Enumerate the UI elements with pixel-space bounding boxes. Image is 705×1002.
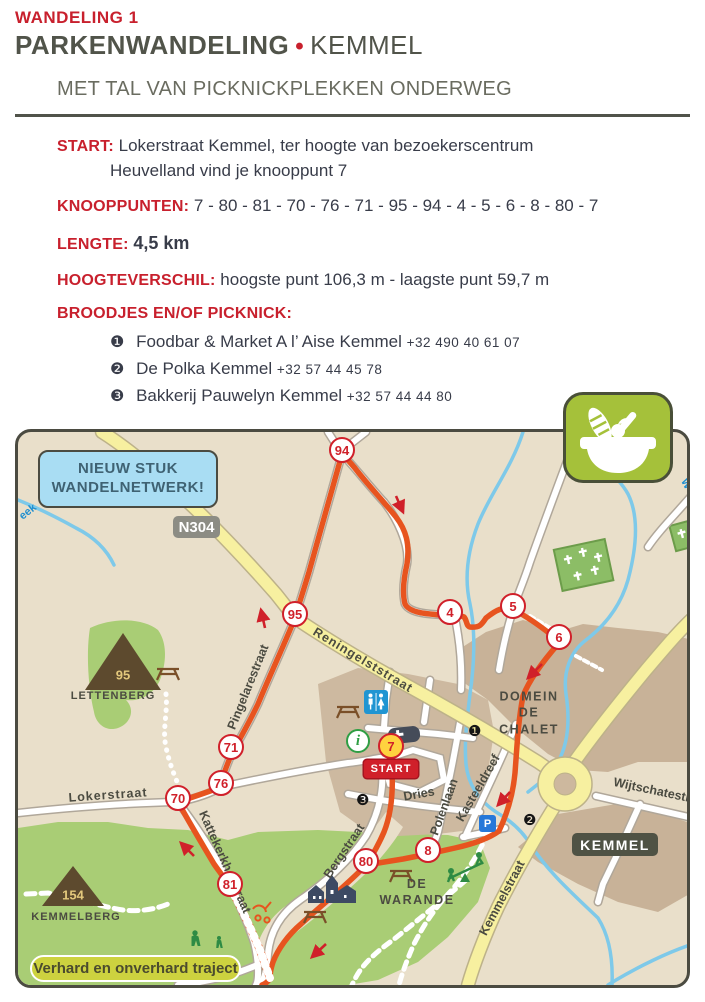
lettenberg-name: LETTENBERG xyxy=(71,690,156,702)
lengte-row: LENGTE: 4,5 km xyxy=(57,233,189,254)
poi-marker-2: ❷ xyxy=(523,811,536,829)
route-node-4: 4 xyxy=(437,599,463,625)
route-node-5: 5 xyxy=(500,593,526,619)
info-point-icon: i xyxy=(346,729,370,753)
route-node-6: 6 xyxy=(546,624,572,650)
kemmelberg-height: 154 xyxy=(62,888,84,903)
title-separator-dot: • xyxy=(289,33,310,60)
poi-marker-1: ❶ xyxy=(468,722,481,740)
road-number-badge: N304 xyxy=(173,516,220,538)
start-text-line1: Lokerstraat Kemmel, ter hoogte van bezoe… xyxy=(119,136,534,155)
area-label-domein-de-chalet: DOMEIN DE CHALET xyxy=(499,689,559,738)
callout-line2: WANDELNETWERK! xyxy=(52,479,205,498)
picnic-basket-glyph xyxy=(566,395,670,480)
walk-kicker: WANDELING 1 xyxy=(15,8,139,28)
kemmelberg-name: KEMMELBERG xyxy=(31,911,120,923)
lengte-label: LENGTE: xyxy=(57,236,129,253)
map-graphics xyxy=(18,432,690,985)
title-main: PARKENWANDELING xyxy=(15,30,289,60)
route-node-81: 81 xyxy=(217,871,243,897)
map-callout: NIEUW STUK WANDELNETWERK! xyxy=(38,450,218,508)
item-3-phone: +32 57 44 44 80 xyxy=(347,389,452,404)
route-node-94: 94 xyxy=(329,437,355,463)
picnic-basket-icon xyxy=(563,392,673,483)
hoogteverschil-row: HOOGTEVERSCHIL: hoogste punt 106,3 m - l… xyxy=(57,270,549,290)
legend-traject: Verhard en onverhard traject xyxy=(30,955,241,982)
broodjes-label: BROODJES EN/OF PICKNICK: xyxy=(57,305,292,323)
lengte-value: 4,5 km xyxy=(133,233,189,253)
list-item: ❸ Bakkerij Pauwelyn Kemmel +32 57 44 44 … xyxy=(110,386,452,406)
route-node-8: 8 xyxy=(415,837,441,863)
knooppunten-row: KNOOPPUNTEN: 7 - 80 - 81 - 70 - 76 - 71 … xyxy=(57,196,598,216)
lettenberg-height: 95 xyxy=(116,668,130,683)
item-1-phone: +32 490 40 61 07 xyxy=(407,335,520,350)
item-2-name: De Polka Kemmel xyxy=(136,359,272,378)
knooppunten-sequence: 7 - 80 - 81 - 70 - 76 - 71 - 95 - 94 - 4… xyxy=(194,196,598,215)
route-map: NIEUW STUK WANDELNETWERK! N304 Reningels… xyxy=(15,429,690,988)
start-row: START: Lokerstraat Kemmel, ter hoogte va… xyxy=(57,136,533,156)
town-badge-kemmel: KEMMEL xyxy=(572,833,658,856)
route-node-80: 80 xyxy=(353,848,379,874)
list-item: ❶ Foodbar & Market A l’ Aise Kemmel +32 … xyxy=(110,332,520,352)
cemetery xyxy=(554,518,690,591)
route-node-7-start: 7 xyxy=(378,733,404,759)
route-node-70: 70 xyxy=(165,785,191,811)
header-divider xyxy=(15,114,690,117)
item-3-bullet: ❸ xyxy=(110,388,124,405)
area-label-de-warande: DE WARANDE xyxy=(379,876,454,909)
parking-icon: P xyxy=(479,815,496,832)
hoogteverschil-value: hoogste punt 106,3 m - laagste punt 59,7… xyxy=(220,270,549,289)
start-label: START: xyxy=(57,138,114,155)
route-node-71: 71 xyxy=(218,734,244,760)
poi-marker-3: ❸ xyxy=(356,791,369,809)
toilets-icon xyxy=(364,690,388,714)
title-place: KEMMEL xyxy=(310,30,423,60)
page-subtitle: MET TAL VAN PICKNICKPLEKKEN ONDERWEG xyxy=(57,78,512,101)
item-1-bullet: ❶ xyxy=(110,334,124,351)
start-row-line2: Heuvelland vind je knooppunt 7 xyxy=(110,161,347,181)
list-item: ❷ De Polka Kemmel +32 57 44 45 78 xyxy=(110,359,382,379)
start-flag: START xyxy=(364,760,418,778)
knooppunten-label: KNOOPPUNTEN: xyxy=(57,198,189,215)
item-2-phone: +32 57 44 45 78 xyxy=(277,362,382,377)
callout-line1: NIEUW STUK xyxy=(78,460,178,479)
hoogteverschil-label: HOOGTEVERSCHIL: xyxy=(57,272,216,289)
route-node-76: 76 xyxy=(208,770,234,796)
item-1-name: Foodbar & Market A l’ Aise Kemmel xyxy=(136,332,402,351)
item-3-name: Bakkerij Pauwelyn Kemmel xyxy=(136,386,342,405)
route-node-95: 95 xyxy=(282,601,308,627)
item-2-bullet: ❷ xyxy=(110,361,124,378)
page-title: PARKENWANDELING•KEMMEL xyxy=(15,30,423,61)
brochure-page: WANDELING 1 PARKENWANDELING•KEMMEL MET T… xyxy=(0,0,705,1002)
